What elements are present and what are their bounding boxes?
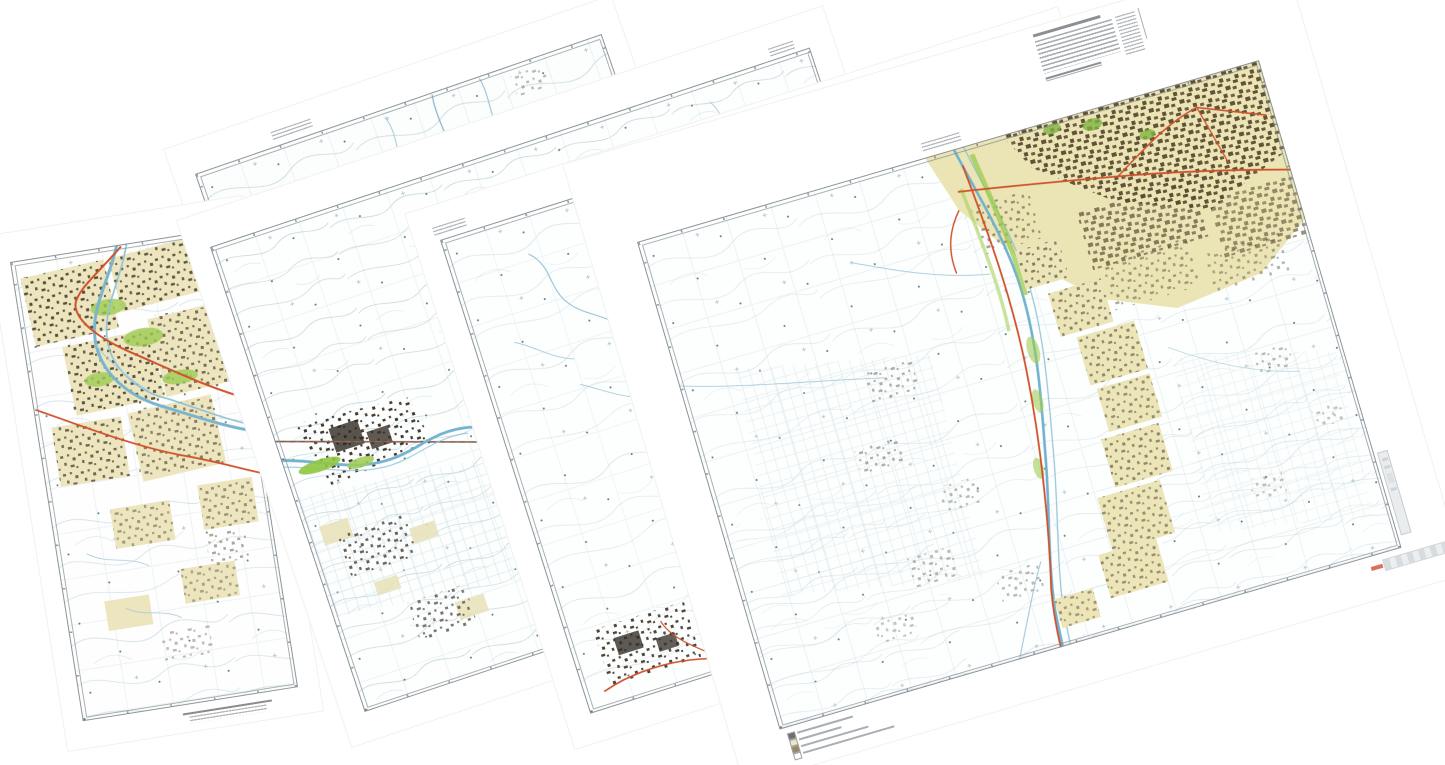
legend-swatch-outline bbox=[793, 752, 803, 760]
map-montage-stage bbox=[0, 0, 1445, 765]
map-sheet-4 bbox=[637, 60, 1402, 729]
